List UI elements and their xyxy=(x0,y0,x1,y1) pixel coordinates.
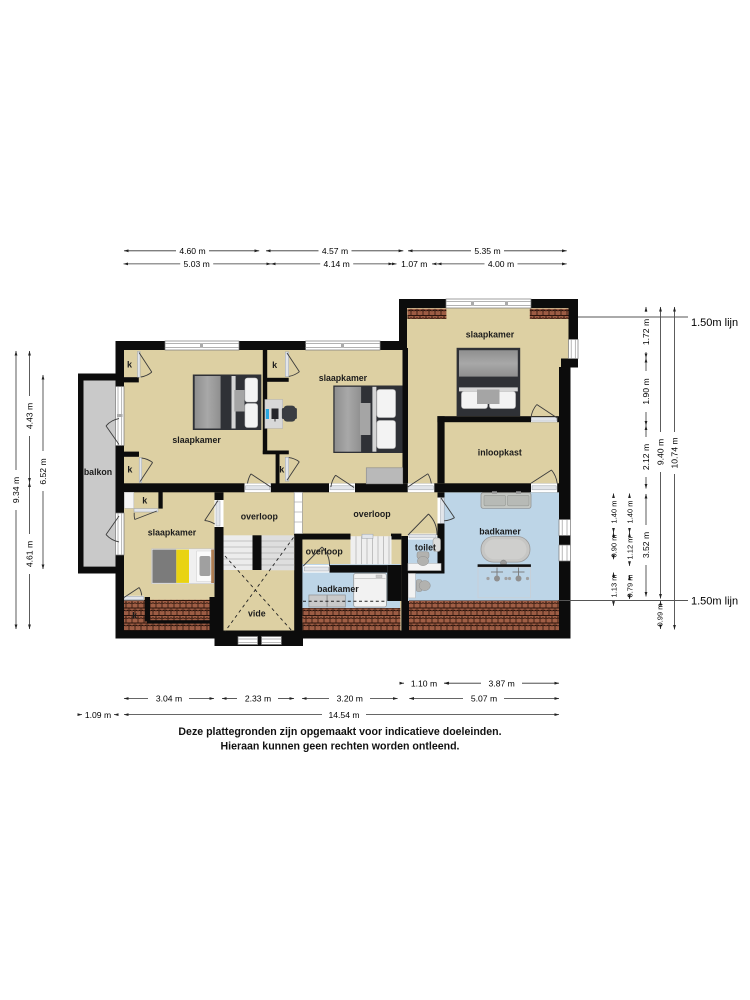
svg-text:9.34 m: 9.34 m xyxy=(11,477,21,503)
svg-text:3.87 m: 3.87 m xyxy=(489,678,515,688)
svg-text:1.07 m: 1.07 m xyxy=(401,259,427,269)
svg-text:1.72 m: 1.72 m xyxy=(641,319,651,345)
svg-text:4.57 m: 4.57 m xyxy=(322,246,348,256)
svg-text:2.12 m: 2.12 m xyxy=(641,444,651,470)
svg-text:balkon: balkon xyxy=(84,467,112,477)
svg-text:inloopkast: inloopkast xyxy=(478,447,522,457)
svg-text:1.09 m: 1.09 m xyxy=(85,710,111,720)
svg-text:2.33 m: 2.33 m xyxy=(245,694,271,704)
svg-text:4.00 m: 4.00 m xyxy=(488,259,514,269)
svg-text:badkamer: badkamer xyxy=(479,526,521,536)
svg-text:4.14 m: 4.14 m xyxy=(324,259,350,269)
svg-text:5.03 m: 5.03 m xyxy=(184,259,210,269)
svg-text:slaapkamer: slaapkamer xyxy=(466,330,515,340)
svg-text:10.74 m: 10.74 m xyxy=(670,437,680,468)
svg-text:slaapkamer: slaapkamer xyxy=(319,373,368,383)
svg-text:9.40 m: 9.40 m xyxy=(656,439,666,465)
svg-text:0.90 m: 0.90 m xyxy=(610,535,619,558)
svg-text:0.79 m: 0.79 m xyxy=(626,575,635,598)
svg-text:4.43 m: 4.43 m xyxy=(25,403,35,429)
svg-text:slaapkamer: slaapkamer xyxy=(148,527,197,537)
svg-text:toilet: toilet xyxy=(415,542,436,552)
svg-text:3.52 m: 3.52 m xyxy=(641,532,651,558)
svg-text:1.10 m: 1.10 m xyxy=(411,678,437,688)
svg-text:1.90 m: 1.90 m xyxy=(641,378,651,404)
svg-text:overloop: overloop xyxy=(353,509,391,519)
svg-text:4.61 m: 4.61 m xyxy=(25,541,35,567)
svg-text:3.20 m: 3.20 m xyxy=(337,694,363,704)
svg-text:3.04 m: 3.04 m xyxy=(156,694,182,704)
svg-text:1.40 m: 1.40 m xyxy=(626,501,635,524)
svg-text:vide: vide xyxy=(248,609,266,619)
svg-text:slaapkamer: slaapkamer xyxy=(172,435,221,445)
svg-text:1.40 m: 1.40 m xyxy=(610,501,619,524)
svg-text:overloop: overloop xyxy=(241,511,279,521)
svg-text:1.13 m: 1.13 m xyxy=(610,575,619,598)
svg-text:1.50m lijn: 1.50m lijn xyxy=(691,596,738,608)
svg-text:5.07 m: 5.07 m xyxy=(471,694,497,704)
svg-text:6.52 m: 6.52 m xyxy=(38,458,48,484)
svg-text:badkamer: badkamer xyxy=(317,584,359,594)
svg-text:4.60 m: 4.60 m xyxy=(179,246,205,256)
svg-text:Deze plattegronden zijn opgema: Deze plattegronden zijn opgemaakt voor i… xyxy=(178,726,501,738)
svg-text:Hieraan kunnen geen rechten wo: Hieraan kunnen geen rechten worden ontle… xyxy=(221,741,460,753)
svg-text:1.12 m: 1.12 m xyxy=(626,537,635,560)
svg-text:5.35 m: 5.35 m xyxy=(474,246,500,256)
svg-text:1.50m lijn: 1.50m lijn xyxy=(691,317,738,329)
svg-text:14.54 m: 14.54 m xyxy=(328,710,359,720)
svg-text:overloop: overloop xyxy=(306,546,344,556)
svg-text:0.99 m: 0.99 m xyxy=(656,604,665,627)
